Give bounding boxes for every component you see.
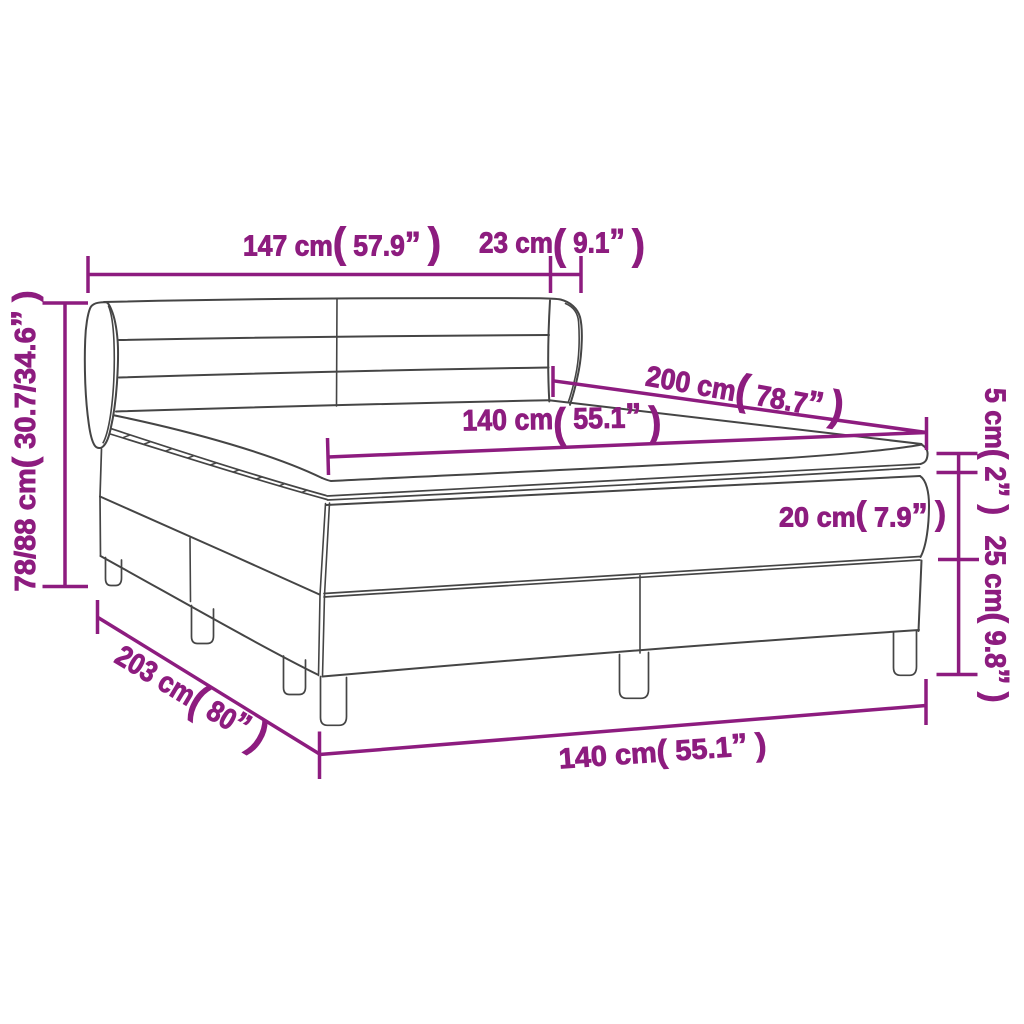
svg-text:203 cm( 80” ): 203 cm( 80” ) [107,631,277,760]
svg-text:23 cm( 9.1” ): 23 cm( 9.1” ) [479,221,645,268]
svg-text:200 cm( 78.7” ): 200 cm( 78.7” ) [643,350,848,431]
svg-text:147 cm( 57.9” ): 147 cm( 57.9” ) [243,219,441,266]
svg-text:140 cm( 55.1” ): 140 cm( 55.1” ) [462,396,662,448]
svg-text:78/88 cm( 30.7/34.6” ): 78/88 cm( 30.7/34.6” ) [5,290,44,591]
svg-text:25 cm( 9.8” ): 25 cm( 9.8” ) [978,536,1016,703]
svg-text:5 cm( 2” ): 5 cm( 2” ) [978,388,1016,515]
svg-text:20 cm( 7.9” ): 20 cm( 7.9” ) [779,496,946,535]
